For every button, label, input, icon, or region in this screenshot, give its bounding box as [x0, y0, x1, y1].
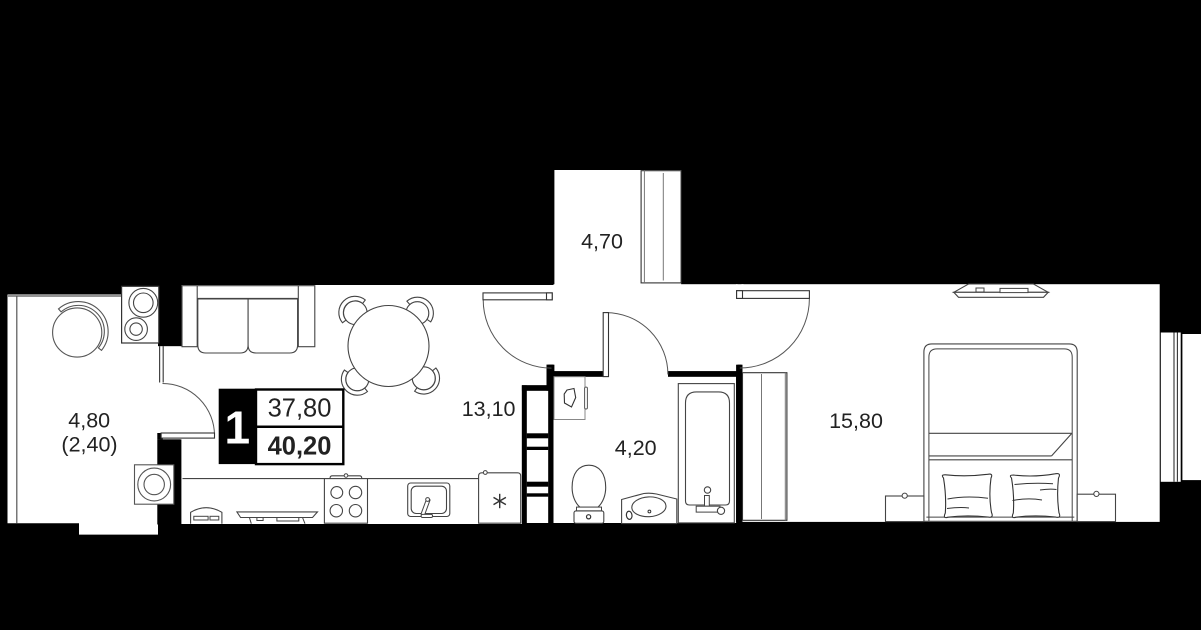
svg-text:4,20: 4,20	[615, 436, 657, 460]
svg-text:37,80: 37,80	[268, 395, 332, 423]
svg-text:(2,40): (2,40)	[61, 433, 117, 457]
svg-text:4,80: 4,80	[68, 408, 110, 432]
svg-text:15,80: 15,80	[829, 409, 883, 433]
svg-text:4,70: 4,70	[581, 230, 623, 254]
svg-text:1: 1	[225, 402, 251, 454]
svg-text:13,10: 13,10	[462, 397, 516, 421]
svg-text:40,20: 40,20	[268, 433, 332, 461]
